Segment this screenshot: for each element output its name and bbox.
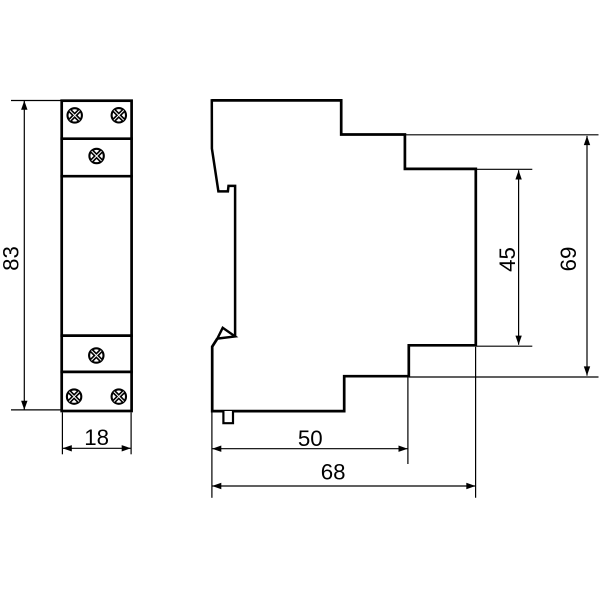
svg-text:69: 69 bbox=[556, 247, 581, 272]
svg-text:18: 18 bbox=[84, 425, 109, 450]
svg-text:50: 50 bbox=[298, 426, 323, 451]
svg-text:45: 45 bbox=[495, 247, 520, 272]
svg-text:68: 68 bbox=[321, 460, 346, 485]
svg-text:83: 83 bbox=[0, 246, 23, 271]
